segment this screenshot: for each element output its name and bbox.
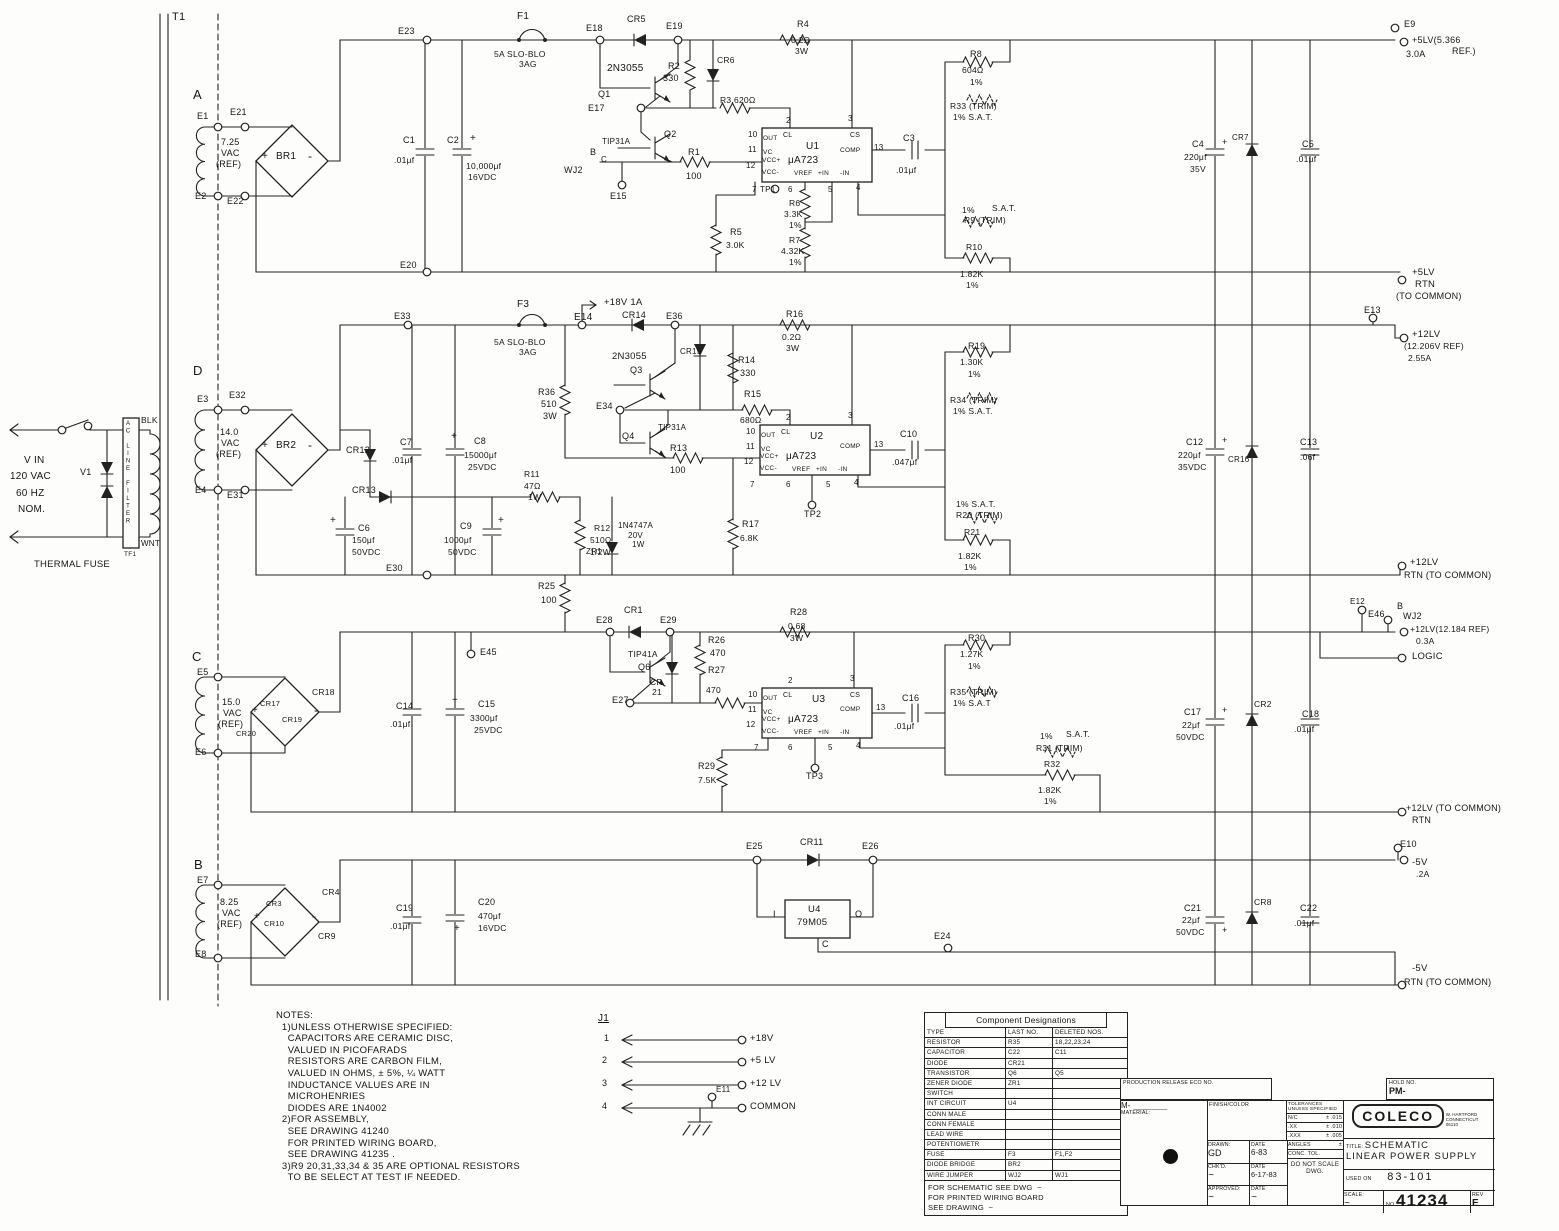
schematic-label: 2N3055 [612,352,647,362]
schematic-label: 100 [670,466,686,475]
schematic-label: CR15 [680,348,701,356]
schematic-label: OUT [763,136,777,143]
schematic-label: μA723 [788,715,818,725]
schematic-label: μA723 [788,156,818,166]
schematic-label: CL [781,429,790,436]
schematic-label: 25VDC [474,726,503,735]
schematic-label: R25 [538,582,555,591]
schematic-label: U2 [810,432,823,442]
schematic-label: CR11 [800,838,823,847]
schematic-label: +12LV [1410,558,1438,568]
component-table-row: CONN FEMALE [925,1120,1127,1130]
schematic-label: VAC [221,149,240,158]
schematic-label: 3W [543,412,557,421]
title-label: TITLE: [1346,1144,1363,1150]
component-designations-table: Component DesignationsTYPELAST NO.DELETE… [924,1012,1128,1216]
component-table-row: DIODE BRIDGEBR2 [925,1160,1127,1170]
schematic-label: C13 [1300,438,1317,447]
hold-cell: HOLD NO. PM- [1386,1078,1494,1100]
schematic-label: 1000μf [444,536,472,545]
schematic-label: J1 [598,1014,609,1024]
schematic-label: R28 [790,608,807,617]
schematic-label: .06f [1300,453,1315,462]
title-block: PRODUCTION RELEASE ECO NO. HOLD NO. PM- … [1120,1078,1494,1206]
schematic-label: 1% [970,78,983,87]
schematic-label: 1W [632,541,645,549]
schematic-label: R5 [730,228,742,237]
schematic-label: 11 [748,706,757,714]
schematic-label: E46 [1368,610,1385,619]
schematic-label: 2 [786,414,791,422]
schematic-label: Q1 [598,90,611,99]
schematic-label: R14 [738,356,755,365]
schematic-label: B [194,858,203,871]
schematic-label: CR14 [622,311,646,320]
schematic-label: WNT [141,540,160,548]
component-table-row: INT CIRCUITU4 [925,1099,1127,1109]
schematic-label: NOM. [18,505,45,515]
schematic-label: E32 [229,391,246,400]
schematic-label: .01μf [390,720,410,729]
schematic-label: 7 [752,186,757,194]
schematic-label: CR5 [627,15,646,24]
tol-row1-label: N/C [1288,1115,1298,1121]
schematic-label: C14 [396,702,413,711]
schematic-label: BR1 [276,152,296,162]
schematic-label: THERMAL FUSE [34,560,110,570]
schematic-label: C9 [460,522,472,531]
schematic-label: 4 [856,742,861,750]
schematic-label: AC LINE FILTER [125,421,131,526]
schematic-label: 1% [789,221,802,230]
schematic-label: 3W [786,344,799,353]
schematic-label: 3300μf [470,714,498,723]
schematic-label: R35 (TRIM) [950,688,997,697]
component-table-row: FUSEF3F1,F2 [925,1150,1127,1160]
schematic-label: C19 [396,904,413,913]
schematic-label: B [1397,602,1403,611]
schematic-label: E21 [230,108,247,117]
schematic-label: 3 [848,115,853,123]
schematic-label: 7 [754,744,759,752]
schematic-label: F1 [517,12,529,22]
schematic-label: VAC [222,909,241,918]
drawing-number: 41234 [1396,1191,1448,1210]
schematic-label: 7.5K [698,776,717,785]
schematic-label: +IN [818,171,829,178]
schematic-label: C20 [478,898,495,907]
schematic-label: 0.68 [788,622,806,631]
schematic-label: C18 [1302,710,1319,719]
schematic-label: 220μf [1178,451,1201,460]
schematic-label: 4 [854,479,859,487]
schematic-label: 13 [874,441,883,449]
schematic-label: COMMON [750,1102,796,1112]
schematic-label: TF1 [124,552,136,559]
schematic-label: R1 [688,148,700,157]
schematic-label: V IN [24,456,44,466]
schematic-label: 1% S.A.T. [953,407,993,416]
schematic-label: R34 (TRIM) [950,396,997,405]
schematic-label: E17 [588,104,605,113]
tolerance-cell: TOLERANCES UNLESS SPECIFIED N/C± .015 .X… [1287,1101,1344,1205]
schematic-label: R15 [744,390,761,399]
schematic-label: 220μf [1184,153,1207,162]
schematic-label: CR1 [624,606,643,615]
schematic-label: .01μf [1296,155,1316,164]
schematic-label: 1.82K [958,552,981,561]
schematic-label: .047μf [892,458,917,467]
schematic-label: 14.0 [220,428,239,437]
schematic-label: 35V [1190,165,1206,174]
schematic-label: 604Ω [962,66,984,75]
schematic-label: CR6 [717,56,735,65]
schematic-label: E12 [1350,598,1365,606]
used-on-label: USED ON [1346,1176,1372,1182]
schematic-label: VREF [794,730,812,737]
drawing-no-label: NO. [1386,1202,1396,1208]
schematic-label: WJ2 [1403,612,1422,621]
schematic-label: 15000μf [464,451,497,460]
schematic-label: TP1 [760,186,775,194]
tolerance-header: TOLERANCES UNLESS SPECIFIED [1287,1101,1343,1114]
approved-signature: ~ [1208,1192,1214,1203]
schematic-label: CS [850,132,860,139]
schematic-label: CR8 [1254,898,1272,907]
schematic-label: (TO COMMON) [1396,292,1462,301]
schematic-label: R19 [968,342,985,351]
schematic-label: E33 [394,312,411,321]
schematic-label: .01μf [1294,919,1314,928]
schematic-label: 1% [962,206,975,215]
schematic-label: + [254,912,260,922]
schematic-label: .01μf [392,456,412,465]
schematic-label: R36 [538,388,555,397]
schematic-label: 3.0A [1406,50,1426,59]
schematic-label: .01μf [894,722,914,731]
schematic-label: E9 [1404,20,1416,29]
schematic-label: - [312,910,316,922]
schematic-label: .01μf [390,922,410,931]
schematic-label: 1% [966,281,979,290]
schematic-label: 25VDC [468,463,497,472]
schematic-label: -IN [840,171,849,178]
punch-dot [1163,1149,1178,1164]
schematic-label: + [470,134,476,144]
schematic-label: VCC+ [762,158,781,165]
schematic-label: F3 [517,300,529,310]
schematic-label: E3 [197,395,209,404]
schematic-label: 10 [748,691,757,699]
schematic-label: E13 [1364,306,1381,315]
component-table-title: Component Designations [945,1013,1107,1028]
schematic-label: E24 [934,932,951,941]
schematic-label: CR18 [312,688,335,697]
schematic-label: 5 [828,744,833,752]
schematic-label: CR3 [266,900,282,908]
schematic-label: 13 [874,144,883,152]
schematic-label: 470 [706,686,721,695]
schematic-label: 3 [850,675,855,683]
schematic-label: C10 [900,430,917,439]
schematic-label: E28 [596,616,613,625]
schematic-label: 47Ω [524,482,541,491]
schematic-label: C6 [358,524,370,533]
drawing-title-1: SCHEMATIC [1365,1140,1429,1151]
tol-row4-label: ANGLES [1288,1142,1311,1148]
schematic-label: +5LV [1412,268,1435,278]
schematic-label: 0.3A [1416,637,1435,646]
schematic-label: R26 [708,636,725,645]
schematic-label: E31 [227,491,244,500]
schematic-label: (12.206V REF) [1404,342,1464,351]
schematic-label: E25 [746,842,763,851]
schematic-label: CR16 [1228,456,1249,464]
schematic-label: O [855,910,862,919]
schematic-label: RTN [1415,280,1435,290]
drawn-value: GD [1208,1148,1222,1158]
schematic-label: BR2 [276,441,296,451]
schematic-label: 4 [856,184,861,192]
schematic-label: R30 [968,634,985,643]
tol-row1-value: ± .015 [1326,1115,1342,1121]
schematic-label: COMP [840,444,861,451]
schematic-label: VREF [794,171,812,178]
schematic-label: 50VDC [352,548,381,557]
wiring-layer [0,0,1559,1231]
schematic-label: 3W [790,634,803,643]
schematic-label: 1.82K [960,270,983,279]
component-table-row: ZENER DIODEZR1 [925,1079,1127,1089]
component-table-row: CAPACITORC22C11 [925,1048,1127,1058]
used-on-value: 83-101 [1387,1171,1433,1183]
schematic-label: C3 [903,134,915,143]
tol-row3-label: .XXX [1288,1133,1301,1139]
schematic-label: .01μf [896,166,916,175]
schematic-label: 3 [848,412,853,420]
schematic-label: + [1222,926,1228,935]
material-cell: M- __________ MATERIAL: [1121,1101,1208,1205]
schematic-label: 50VDC [448,548,477,557]
schematic-label: VCC- [762,170,779,177]
schematic-label: E26 [862,842,879,851]
schematic-label: -5V [1412,964,1428,974]
approved-cell: APPROVED:~ DATE~ [1207,1185,1288,1205]
schematic-label: 35VDC [1178,463,1207,472]
schematic-label: T1 [172,12,185,23]
schematic-label: E23 [398,27,415,36]
schematic-label: R13 [670,444,687,453]
eco-cell: PRODUCTION RELEASE ECO NO. [1120,1078,1272,1100]
schematic-label: 22μf [1182,916,1200,925]
schematic-label: R32 [1044,760,1060,769]
schematic-label: +18V 1A [604,298,642,308]
schematic-label: E27 [612,696,629,705]
scale-value: ~ [1344,1198,1350,1209]
schematic-label: 11 [746,443,755,451]
drawn-date: 6-83 [1251,1148,1267,1157]
schematic-label: E5 [197,668,209,677]
schematic-label: E11 [716,1086,730,1094]
schematic-label: + [1222,436,1228,445]
drawing-title-2: LINEAR POWER SUPPLY [1346,1151,1477,1162]
schematic-label: CR10 [264,920,284,928]
schematic-label: 2 [786,117,791,125]
schematic-label: 2.55A [1408,354,1431,363]
schematic-label: .01μf [394,156,414,165]
schematic-label: E15 [610,192,627,201]
schematic-label: 10 [746,428,755,436]
schematic-label: C5 [1302,140,1314,149]
chkd-date: 6-17-83 [1251,1170,1277,1179]
schematic-label: 330 [740,369,756,378]
schematic-label: R31 (TRIM) [1036,744,1083,753]
schematic-label: Q4 [622,432,635,441]
schematic-label: 2 [788,677,793,685]
schematic-label: A [193,88,202,101]
schematic-label: C1 [403,136,415,145]
schematic-label: U4 [808,905,821,915]
schematic-label: 1% S.A.T. [956,500,996,509]
schematic-label: R8 [970,50,982,59]
schematic-label: + [451,432,457,442]
schematic-label: (REF) [217,920,242,929]
component-table-row: LEAD WIRE [925,1130,1127,1140]
schematic-label: -IN [838,467,847,474]
schematic-label: CR13 [352,486,376,495]
schematic-label: (REF) [216,160,241,169]
schematic-label: 20V [628,532,643,540]
schematic-label: REF.) [1452,47,1476,56]
finish-cell: FINISH/COLOR [1207,1101,1287,1141]
tol-row4-value: ± [1339,1142,1342,1148]
schematic-label: 1% [789,258,802,267]
schematic-label: E36 [666,312,683,321]
schematic-label: 22μf [1182,721,1200,730]
schematic-label: 6 [788,744,793,752]
schematic-label: - [308,439,312,451]
schematic-label: CS [850,692,860,699]
schematic-label: - [314,704,318,716]
title-block-body: M- __________ MATERIAL: FINISH/COLOR DRA… [1120,1100,1494,1206]
schematic-label: 330 [663,74,679,83]
schematic-label: 0.2Ω [782,333,801,342]
schematic-label: E6 [195,748,207,757]
brand-address: W. HARTFORD CONNECTICUT 06110 [1446,1112,1486,1127]
schematic-label: OUT [761,433,775,440]
schematic-label: Q6 [638,663,651,672]
schematic-label: 6 [788,186,793,194]
schematic-label: LOGIC [1412,652,1443,662]
schematic-label: 3.3K [784,210,803,219]
schematic-label: E2 [195,192,207,201]
brand-title-cell: COLECO W. HARTFORD CONNECTICUT 06110 TIT… [1343,1101,1495,1205]
schematic-label: +IN [816,467,827,474]
schematic-label: RTN (TO COMMON) [1404,571,1491,580]
schematic-label: 3AG [519,60,537,69]
schematic-label: +12 LV [750,1079,781,1089]
schematic-label: R17 [742,520,759,529]
schematic-label: 1.27K [960,650,983,659]
rev-value: E [1472,1198,1479,1209]
chkd-signature: ~ [1208,1170,1214,1181]
schematic-label: 510Ω [590,536,612,545]
schematic-label: 16VDC [478,924,507,933]
component-table-row: RESISTORR3518,22,23,24 [925,1038,1127,1048]
schematic-label: C8 [474,437,486,446]
schematic-label: 12 [744,458,753,466]
schematic-label: C2 [447,136,459,145]
schematic-label: OUT [763,696,777,703]
schematic-label: 5 [826,481,831,489]
schematic-label: 2N3055 [607,64,644,74]
schematic-label: .01μf [1294,725,1314,734]
schematic-label: 1.82K [1038,786,1061,795]
schematic-label: CR4 [322,888,340,897]
schematic-label: 12 [746,162,755,170]
schematic-label: + [454,924,460,934]
schematic-label: (REF) [216,450,241,459]
schematic-label: (REF) [218,720,243,729]
schematic-label: 11 [748,146,757,154]
schematic-sheet: T1AE1E217.25VAC(REF)E2E22+BR1-E23F15A SL… [0,0,1559,1231]
schematic-label: CL [783,132,792,139]
schematic-label: 5A SLO-BLO [494,338,546,347]
schematic-label: C17 [1184,708,1201,717]
schematic-label: C [822,940,829,949]
schematic-label: 60 HZ [16,489,44,499]
schematic-label: I [773,910,776,919]
schematic-label: C12 [1186,438,1203,447]
schematic-label: R11 [524,470,540,479]
schematic-label: R21 [964,528,980,537]
notes-block: NOTES: 1)UNLESS OTHERWISE SPECIFIED: CAP… [276,1010,520,1184]
schematic-label: - [308,150,312,162]
tol-row5-label: CONC. TOL. [1287,1150,1343,1159]
schematic-label: C16 [902,694,919,703]
schematic-label: S.A.T. [1066,730,1090,739]
schematic-label: CL [783,692,792,699]
schematic-label: .2A [1416,870,1430,879]
schematic-label: E45 [480,648,497,657]
schematic-label: E8 [195,950,207,959]
coleco-logo: COLECO [1352,1104,1444,1128]
schematic-label: 1% [968,662,981,671]
component-table-row: CONN MALE [925,1110,1127,1120]
schematic-label: C7 [400,438,412,447]
schematic-label: 100 [541,596,557,605]
schematic-label: 150μf [352,536,375,545]
schematic-label: 15.0 [222,698,241,707]
schematic-label: C [601,156,607,164]
schematic-label: 3AG [519,348,537,357]
schematic-label: 1% [964,563,977,572]
schematic-label: WJ2 [564,166,583,175]
schematic-label: 5 [828,186,833,194]
hold-value: PM- [1389,1086,1406,1096]
schematic-label: COMP [840,148,861,155]
component-table-row: POTENTIOMETR [925,1140,1127,1150]
schematic-label: 5A SLO-BLO [494,50,546,59]
component-table-footer: FOR SCHEMATIC SEE DWG ~ FOR PRINTED WIRI… [925,1181,1127,1215]
schematic-label: 3 [602,1079,607,1088]
schematic-label: E34 [596,402,613,411]
schematic-label: R9 (TRIM) [964,216,1006,225]
schematic-label: C15 [478,700,495,709]
schematic-label: RTN [1412,816,1431,825]
schematic-label: COMP [840,707,861,714]
schematic-label: +18V [750,1034,773,1044]
